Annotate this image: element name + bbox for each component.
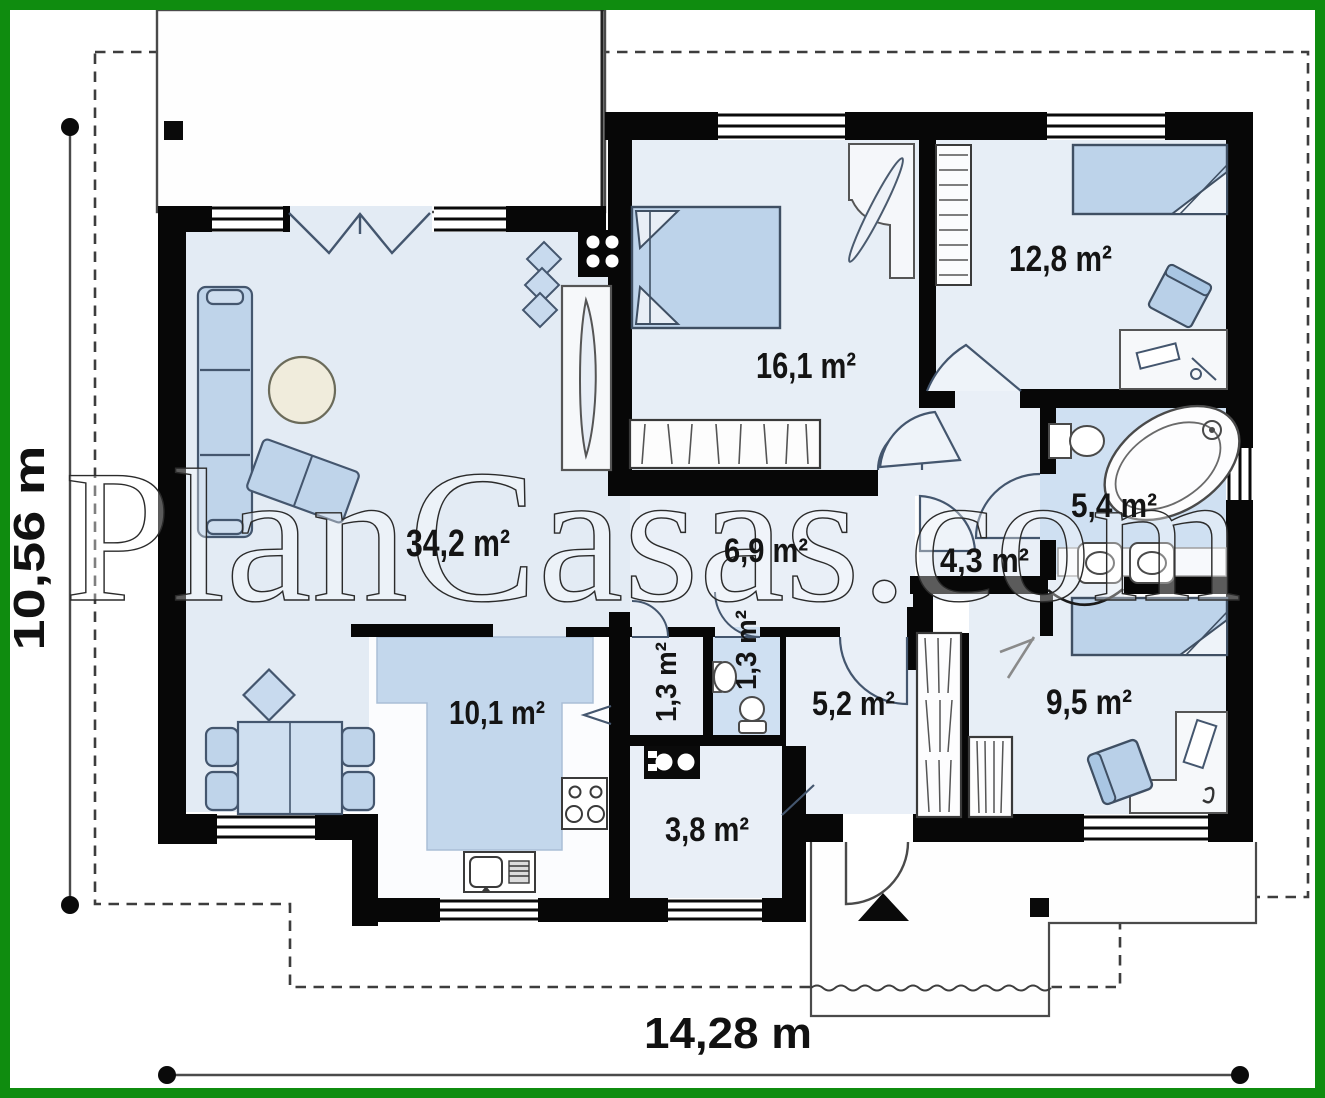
svg-text:5,2 m²: 5,2 m² [812, 685, 895, 723]
svg-text:3,8 m²: 3,8 m² [665, 811, 749, 849]
svg-text:16,1 m²: 16,1 m² [756, 345, 856, 386]
svg-text:5,4 m²: 5,4 m² [1071, 487, 1157, 525]
svg-text:PlanCasas.com: PlanCasas.com [64, 432, 1242, 642]
svg-text:9,5 m²: 9,5 m² [1046, 683, 1132, 722]
svg-text:14,28 m: 14,28 m [644, 1009, 812, 1058]
svg-text:1,3 m²: 1,3 m² [731, 610, 763, 690]
svg-text:1,3 m²: 1,3 m² [651, 642, 683, 722]
svg-text:6,9 m²: 6,9 m² [724, 532, 808, 570]
svg-text:34,2 m²: 34,2 m² [406, 523, 510, 565]
svg-text:10,1 m²: 10,1 m² [449, 694, 545, 731]
svg-text:4,3 m²: 4,3 m² [940, 542, 1029, 580]
svg-text:12,8 m²: 12,8 m² [1009, 238, 1112, 279]
svg-text:10,56 m: 10,56 m [5, 446, 54, 651]
